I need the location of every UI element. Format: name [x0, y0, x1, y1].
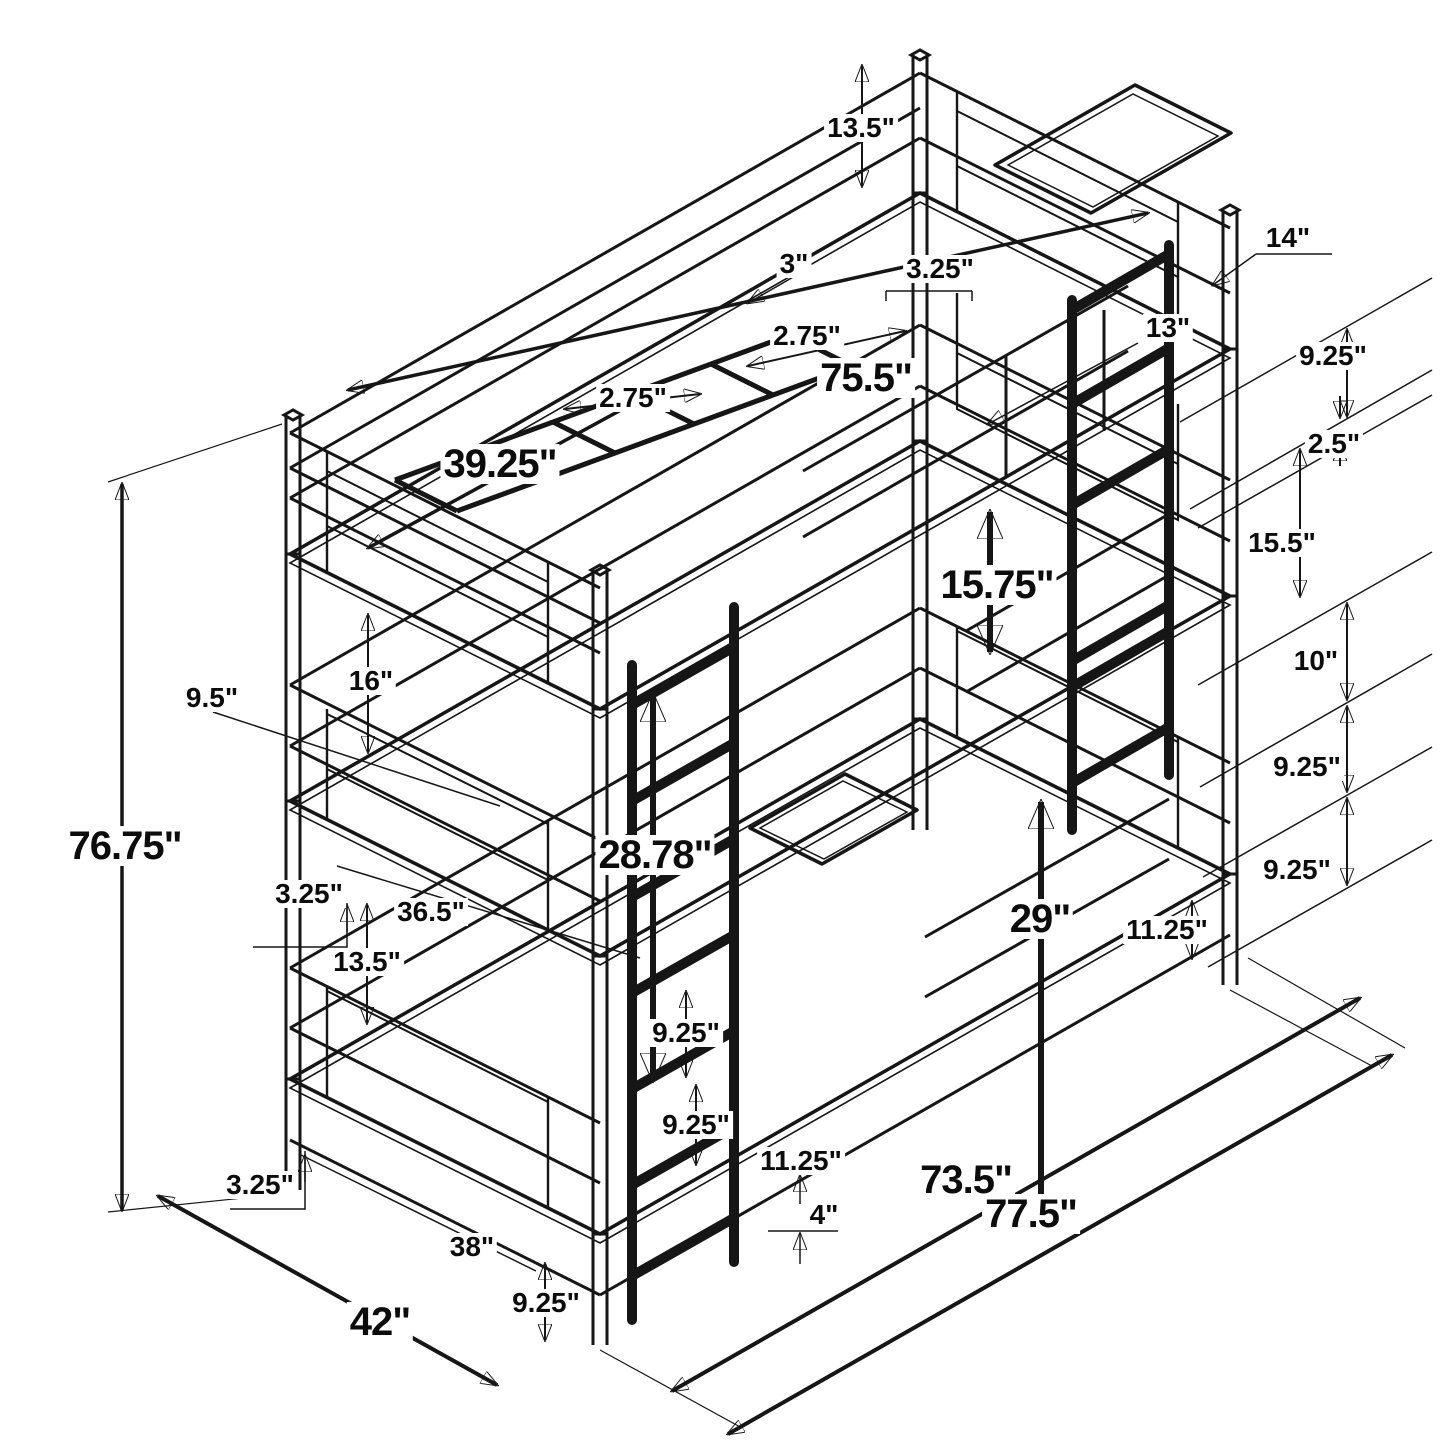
dim-label-39-25: 39.25" — [440, 444, 559, 484]
dim-label-15-5: 15.5" — [1245, 529, 1319, 557]
dim-label-28-78: 28.78" — [595, 835, 714, 875]
guard-rails — [290, 73, 1230, 1295]
dim-label-36-5: 36.5" — [394, 898, 468, 926]
dim-label-10: 10" — [1291, 647, 1341, 675]
dim-label-14: 14" — [1263, 224, 1313, 252]
dim-label-9-25-front1: 9.25" — [649, 1019, 723, 1047]
dim-label-13-5-top: 13.5" — [824, 114, 898, 142]
dim-label-3-25-bottom: 3.25" — [223, 1171, 297, 1199]
dim-label-9-25-right3: 9.25" — [1260, 856, 1334, 884]
dim-label-2-75-a: 2.75" — [770, 322, 844, 350]
dimension-diagram: 13.5" 14" 3" 3.25" 13" 2.75" 9.25" 75.5"… — [0, 0, 1445, 1445]
dim-label-9-25-right2: 9.25" — [1270, 753, 1344, 781]
dim-label-15-75: 15.75" — [937, 565, 1056, 605]
bed-drawing — [0, 0, 1445, 1445]
dim-label-76-75: 76.75" — [65, 826, 184, 866]
dim-label-2-5: 2.5" — [1305, 430, 1363, 458]
dimension-lines — [108, 66, 1432, 1434]
dim-label-4: 4" — [807, 1201, 842, 1229]
dim-label-75-5: 75.5" — [817, 358, 915, 398]
dim-label-9-25-right1: 9.25" — [1296, 342, 1370, 370]
dim-label-3-25-top: 3.25" — [903, 255, 977, 283]
dim-label-11-25-front: 11.25" — [757, 1147, 845, 1175]
mattress-decks — [290, 193, 1230, 1243]
dim-label-42: 42" — [347, 1302, 413, 1342]
dim-label-9-25-front2: 9.25" — [659, 1111, 733, 1139]
dim-label-2-75-b: 2.75" — [596, 384, 670, 412]
dim-label-16: 16" — [346, 667, 396, 695]
dim-label-3-25-mid: 3.25" — [272, 880, 346, 908]
ladder-front — [632, 607, 734, 1320]
dim-label-77-5: 77.5" — [982, 1194, 1080, 1234]
dim-label-9-25-bottom: 9.25" — [509, 1289, 583, 1317]
dim-label-13-5-left: 13.5" — [330, 948, 404, 976]
dim-label-38: 38" — [447, 1233, 497, 1261]
dim-label-11-25-right: 11.25" — [1123, 916, 1211, 944]
dim-label-9-5: 9.5" — [183, 684, 241, 712]
dim-label-13: 13" — [1143, 314, 1193, 342]
dim-label-29: 29" — [1007, 899, 1073, 939]
dim-label-3: 3" — [777, 250, 812, 278]
